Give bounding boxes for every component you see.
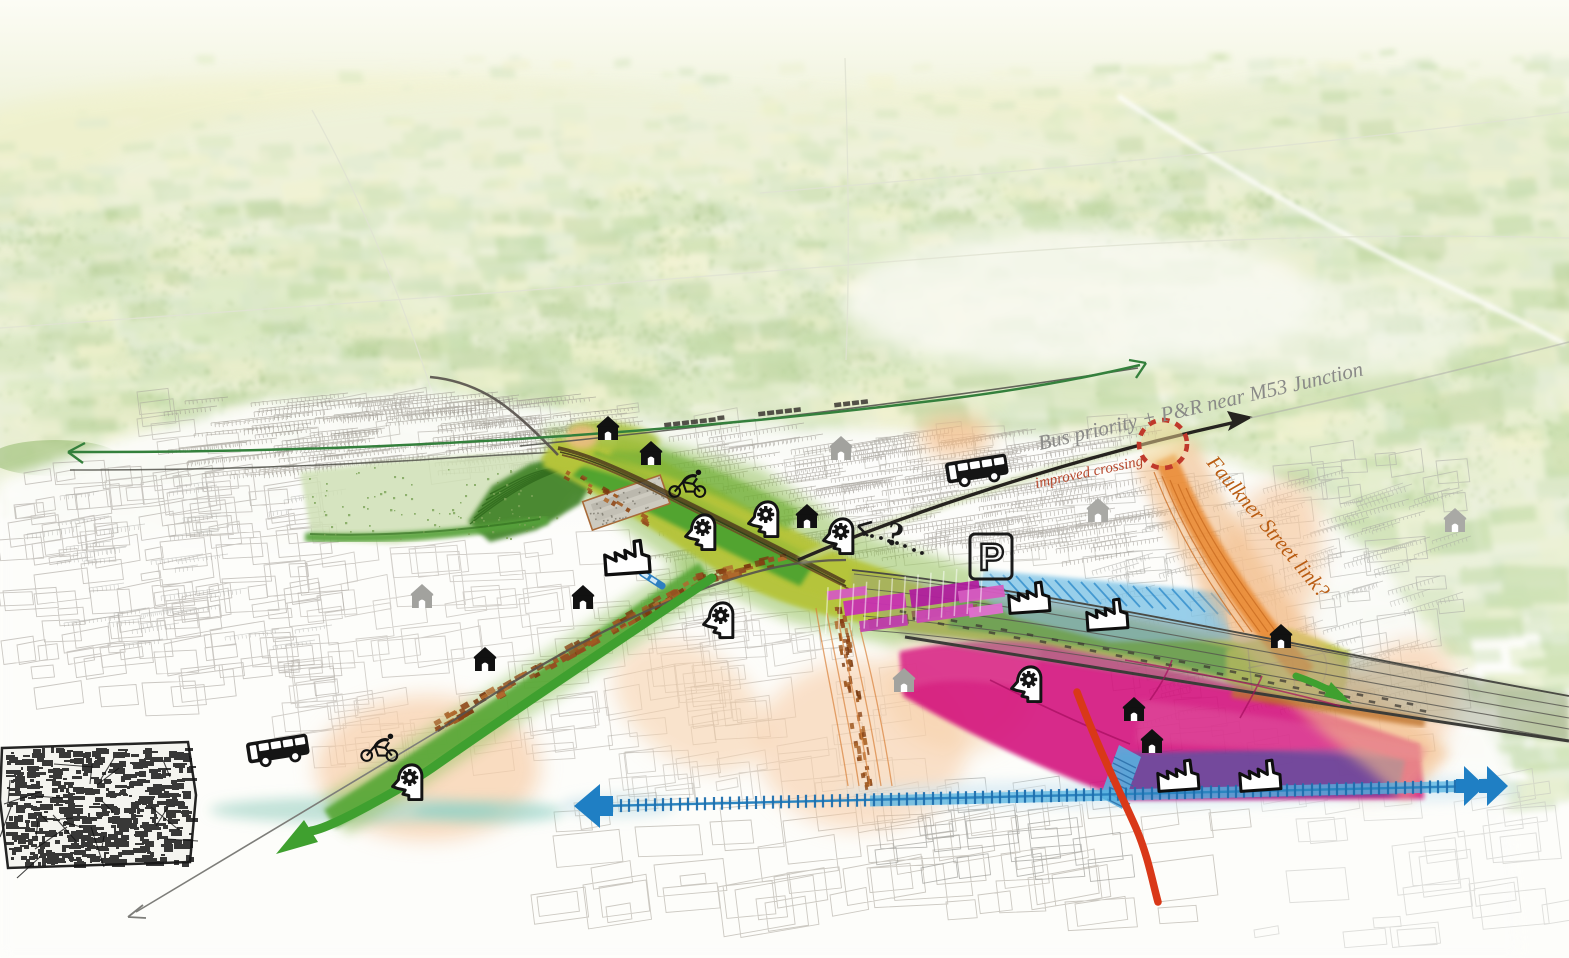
svg-text:P: P (979, 537, 1004, 579)
